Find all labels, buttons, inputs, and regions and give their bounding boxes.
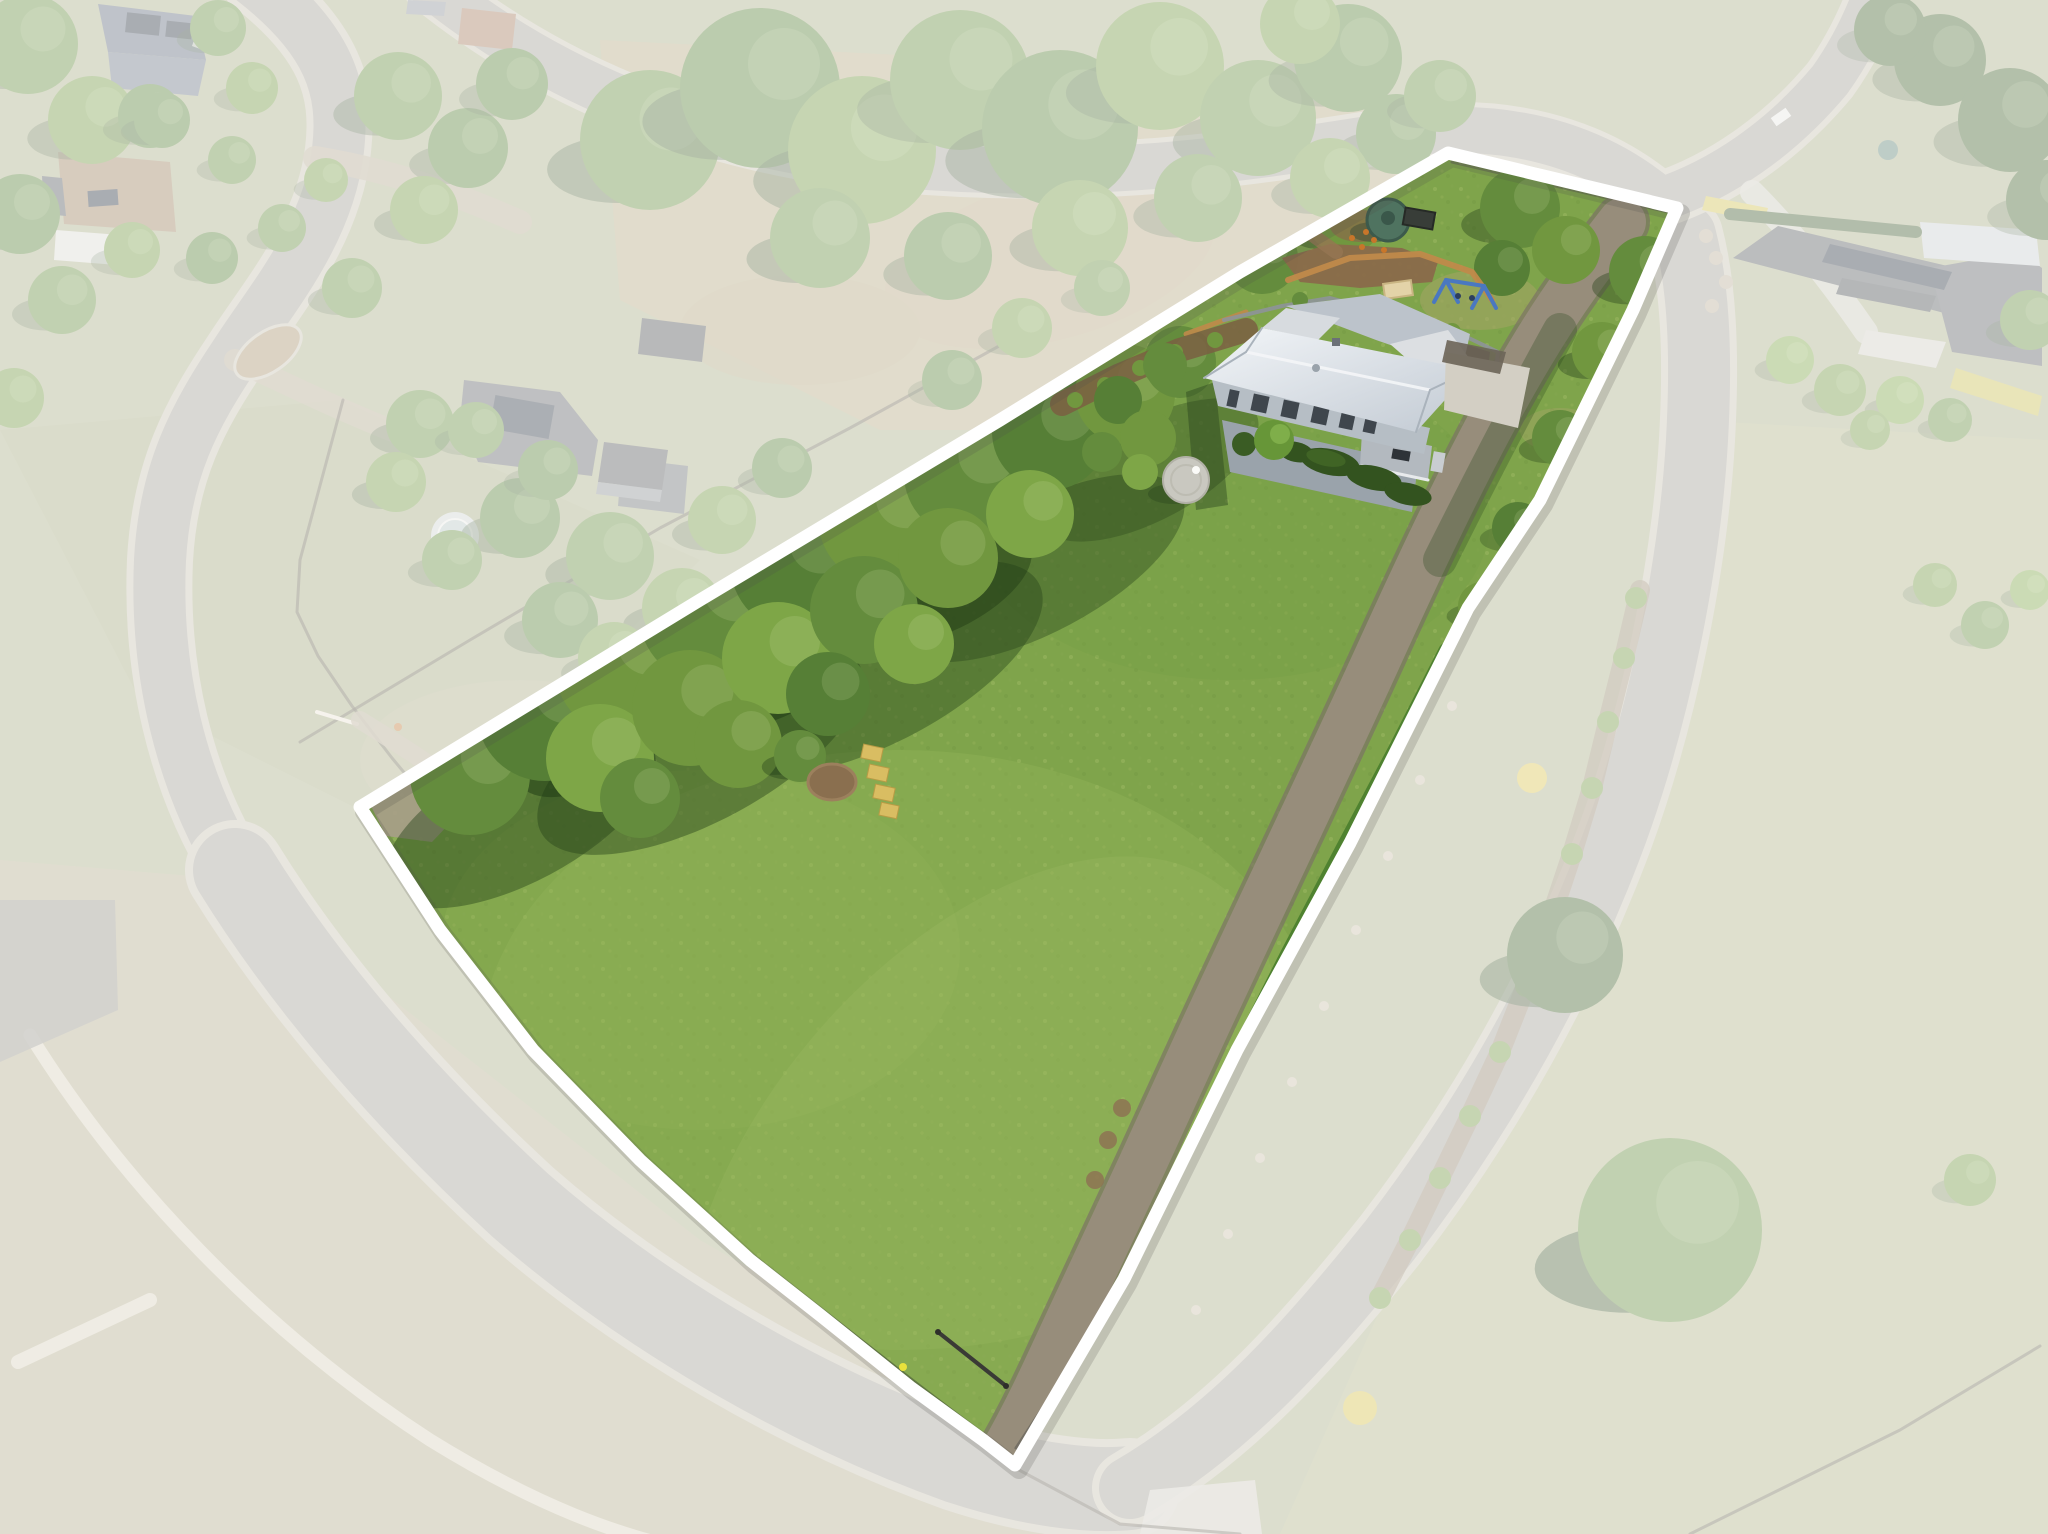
round-bush <box>1232 432 1256 456</box>
chicken-3 <box>1381 247 1387 253</box>
tree-highlight <box>796 737 819 760</box>
aerial-photo <box>0 0 2048 1534</box>
tree-highlight <box>822 663 860 701</box>
tank-detail <box>1192 466 1200 474</box>
tree-highlight <box>731 711 771 751</box>
palm <box>1082 432 1122 472</box>
chicken-0 <box>1349 235 1355 241</box>
gate-post <box>1003 1383 1009 1389</box>
driveway-dirt-1 <box>1113 1099 1131 1117</box>
garden-shrub-4 <box>1207 332 1223 348</box>
driveway-dirt-0 <box>1099 1131 1117 1149</box>
tree-highlight <box>941 521 986 566</box>
sandpit <box>1383 280 1413 299</box>
tree-highlight <box>908 614 944 650</box>
gate-post <box>935 1329 941 1335</box>
palm <box>1122 454 1158 490</box>
tree-highlight <box>634 768 670 804</box>
tree-highlight <box>1561 225 1592 256</box>
tree-highlight <box>1023 481 1063 521</box>
driveway-dirt-2 <box>1086 1171 1104 1189</box>
swing-seat <box>1469 295 1475 301</box>
chicken-4 <box>1363 229 1369 235</box>
tank-lid <box>1381 211 1395 225</box>
bright-tree-highlight <box>1270 424 1290 444</box>
roof-vent <box>1312 364 1320 372</box>
chicken-1 <box>1359 244 1365 250</box>
dirt-circle <box>808 764 856 800</box>
concrete-water-tank <box>1163 457 1209 503</box>
aerial-photo-frame <box>0 0 2048 1534</box>
swing-seat <box>1455 293 1461 299</box>
garden-tree <box>1143 343 1187 387</box>
tree-highlight <box>1498 247 1523 272</box>
chimney <box>1332 338 1340 346</box>
chicken-2 <box>1371 237 1377 243</box>
